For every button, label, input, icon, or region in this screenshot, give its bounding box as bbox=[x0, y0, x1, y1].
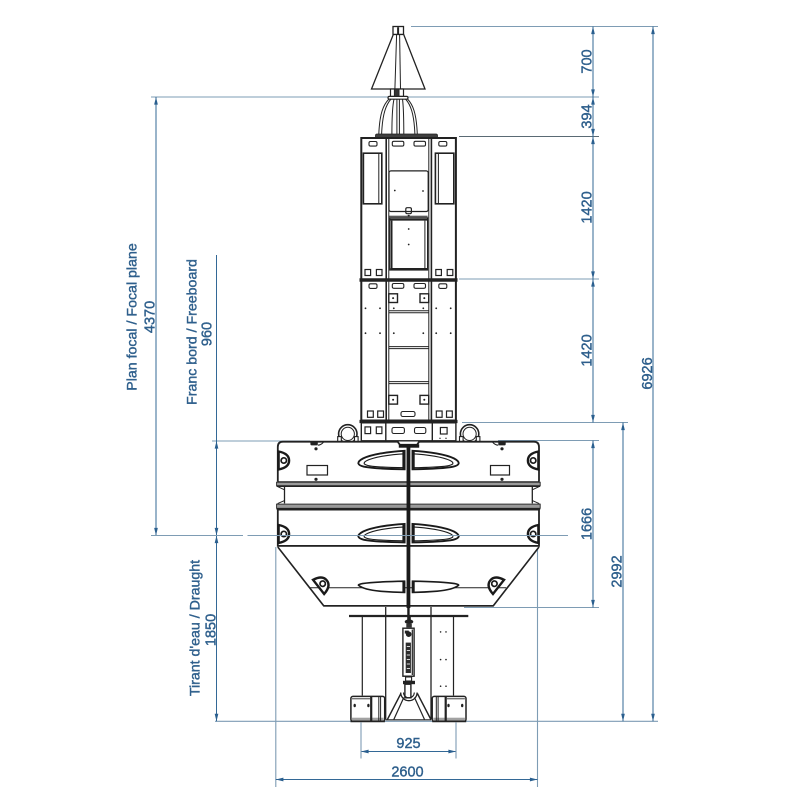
svg-text:394: 394 bbox=[580, 104, 596, 128]
svg-text:Franc bord / Freeboard: Franc bord / Freeboard bbox=[185, 259, 201, 405]
svg-text:2992: 2992 bbox=[610, 555, 626, 587]
svg-text:1420: 1420 bbox=[580, 191, 596, 223]
svg-text:925: 925 bbox=[396, 736, 420, 752]
svg-text:6926: 6926 bbox=[640, 357, 656, 389]
svg-text:Plan focal / Focal plane: Plan focal / Focal plane bbox=[125, 243, 141, 391]
svg-text:Tirant d'eau / Draught: Tirant d'eau / Draught bbox=[188, 560, 204, 696]
svg-text:1420: 1420 bbox=[580, 334, 596, 366]
svg-text:2600: 2600 bbox=[391, 765, 423, 781]
svg-text:960: 960 bbox=[200, 322, 216, 346]
svg-text:700: 700 bbox=[580, 49, 596, 73]
svg-text:4370: 4370 bbox=[143, 301, 159, 333]
svg-text:1850: 1850 bbox=[204, 614, 220, 646]
svg-text:1666: 1666 bbox=[580, 508, 596, 540]
